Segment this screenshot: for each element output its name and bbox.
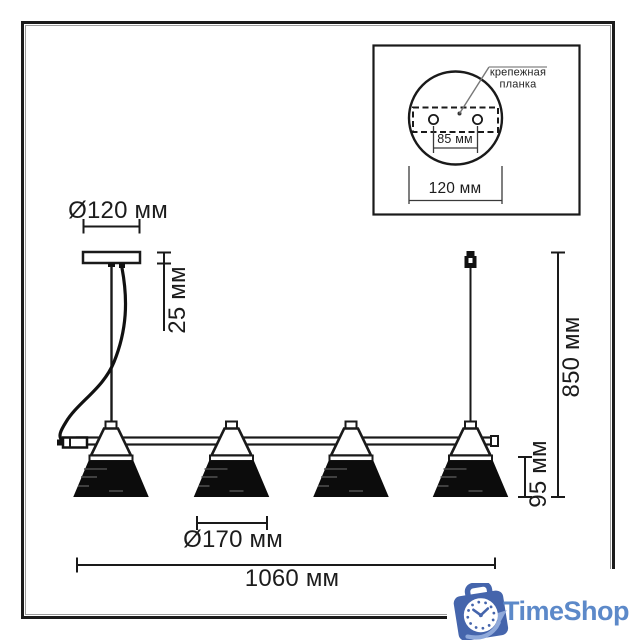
product-dimension-sheet: { "diagram": { "dim_canopy_diameter": "Ø… [0,0,640,640]
mounting-plate [413,108,498,133]
cord-grip-notch [469,258,473,263]
shade-top [331,429,371,456]
shade-top [451,429,491,456]
canopy-top-view [409,72,502,165]
dim-canopy-diameter-label: Ø120 мм [68,197,168,225]
lampshade-3 [314,422,388,497]
mounting-hole-right [473,115,482,124]
shade-top [212,429,252,456]
dim-total-height-label: 850 мм [558,317,586,398]
shade-rim [449,456,492,462]
mounting-hole-left [429,115,438,124]
lampshade-2 [195,422,269,497]
dim-total-length-label: 1060 мм [245,565,339,593]
timeshop-logo-text: TimeShop [503,596,629,627]
shade-rim [330,456,373,462]
mounting-plate-caption: крепежная планка [490,68,546,91]
dim-hole-spacing-label: 85 мм [437,132,473,146]
dim-shade-diameter-label: Ø170 мм [183,526,283,554]
shade-rim [90,456,133,462]
ceiling-canopy [83,252,140,263]
power-cable [60,268,126,441]
mounting-plate-caption-line2: планка [490,79,546,91]
cable-connector-inlet [57,440,63,446]
dim-canopy-height-label: 25 мм [164,266,192,333]
dimension-diagram [0,0,640,640]
mounting-plate-caption-line1: крепежная [490,68,546,80]
lampshade-1 [74,422,148,497]
horizontal-bar [77,438,497,445]
shade-rim [210,456,253,462]
lampshade-4 [434,422,508,497]
dim-shade-height-label: 95 мм [525,440,553,507]
shade-top [91,429,131,456]
cable-connector [63,438,87,448]
dim-plate-width-label: 120 мм [429,180,482,198]
bar-end-cap [491,436,498,446]
